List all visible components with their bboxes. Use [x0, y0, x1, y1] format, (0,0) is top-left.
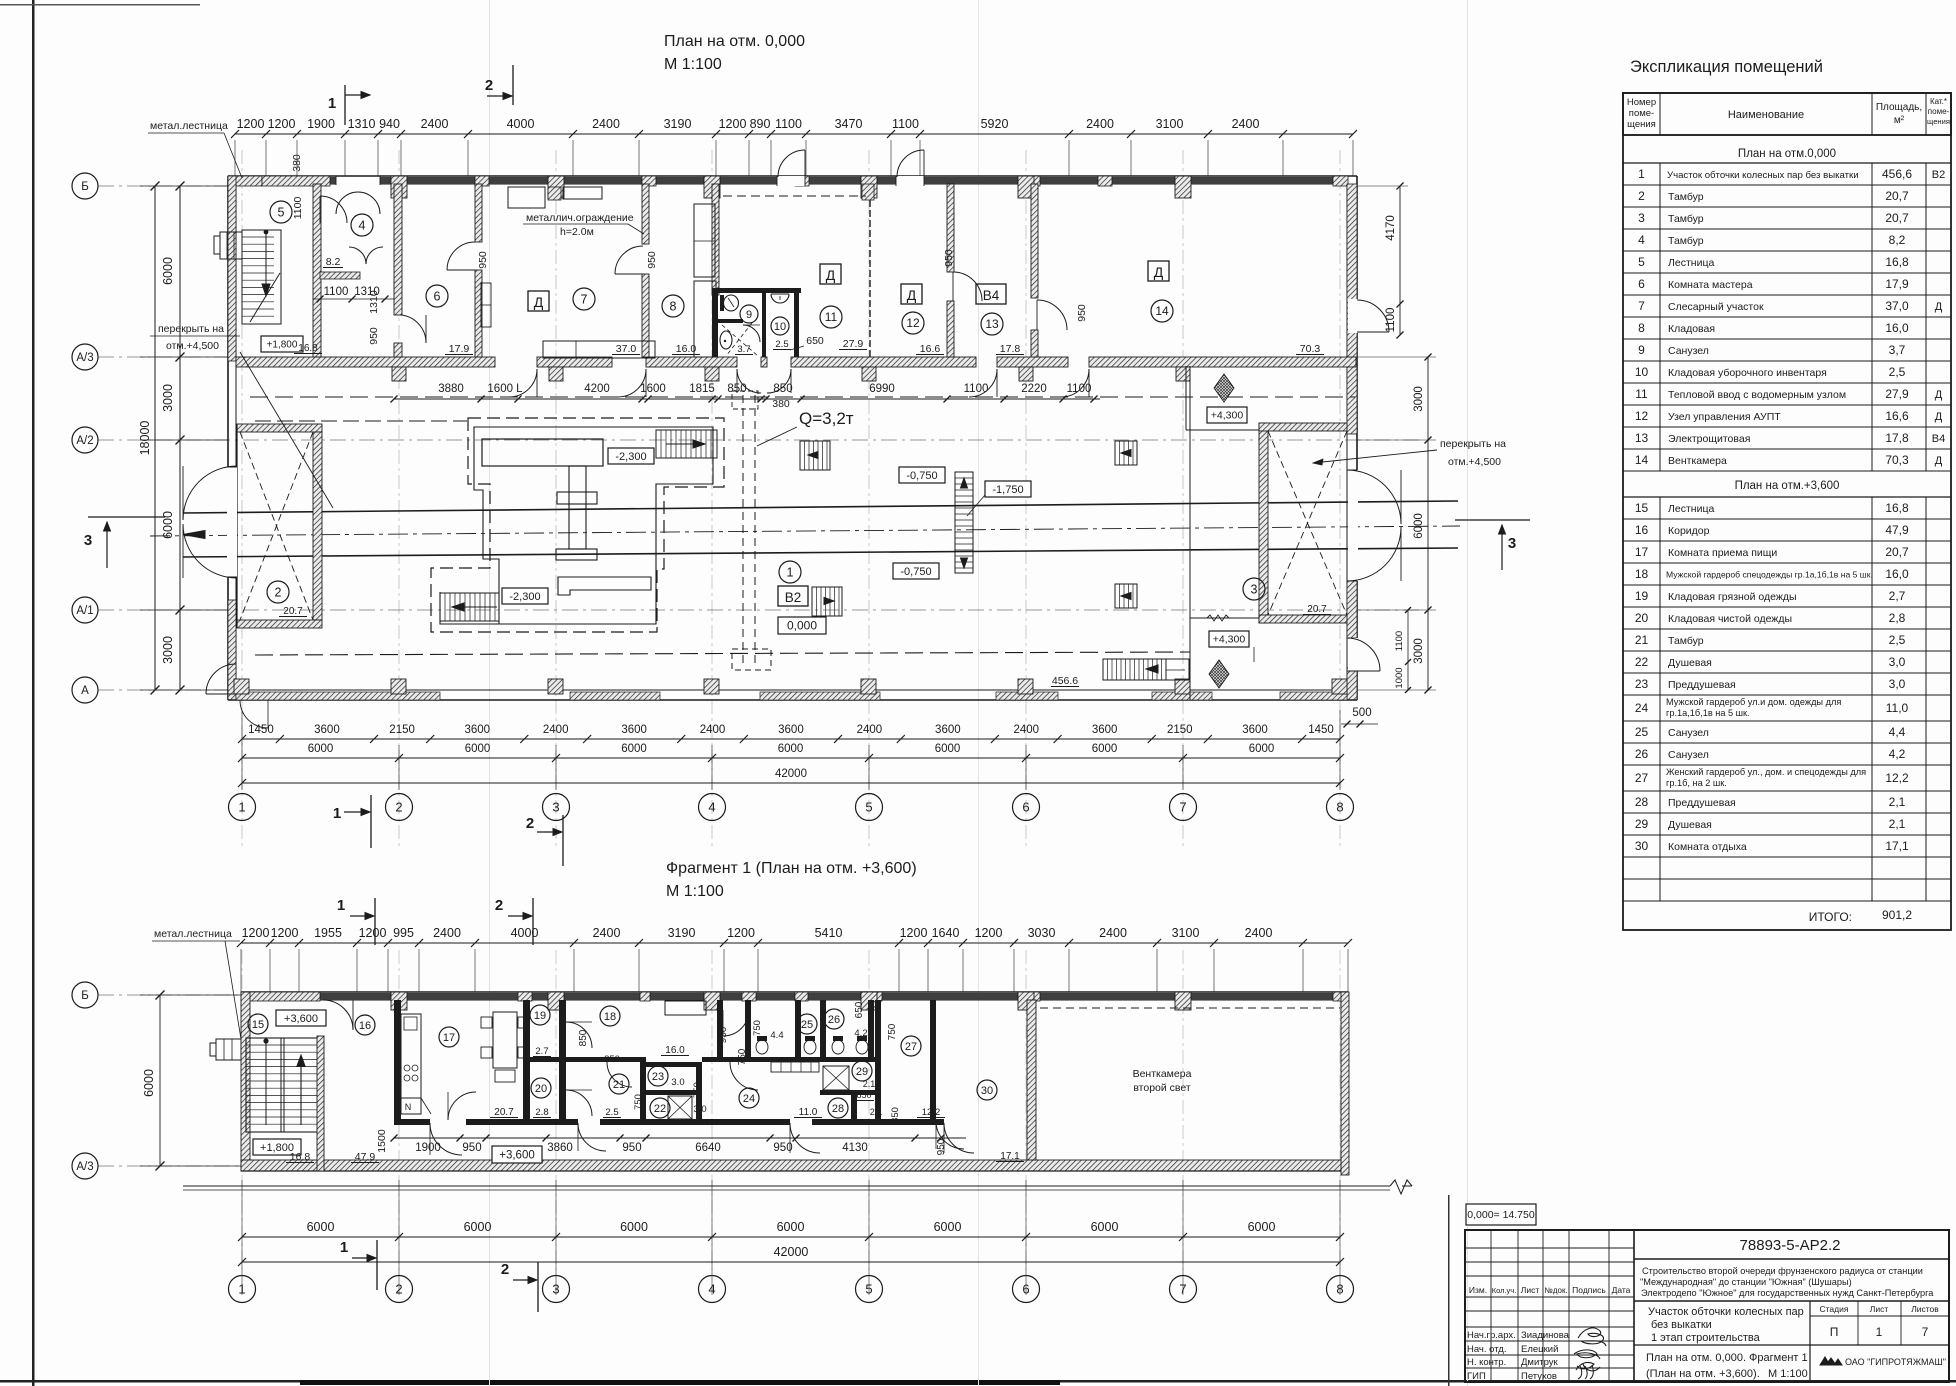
svg-text:Преддушевая: Преддушевая	[1668, 679, 1736, 691]
svg-text:3600: 3600	[1242, 724, 1268, 736]
svg-text:Д: Д	[534, 294, 544, 310]
svg-text:17: 17	[1635, 545, 1649, 559]
svg-text:1200: 1200	[237, 117, 265, 131]
svg-text:950: 950	[462, 1142, 481, 1154]
svg-text:Тамбур: Тамбур	[1668, 235, 1704, 247]
svg-text:850: 850	[578, 1029, 589, 1046]
svg-text:0,000= 14.750: 0,000= 14.750	[1467, 1209, 1535, 1221]
svg-text:Д: Д	[1935, 411, 1943, 423]
svg-text:-1,750: -1,750	[992, 484, 1023, 496]
svg-text:22: 22	[654, 1103, 666, 1115]
svg-text:3600: 3600	[778, 724, 804, 736]
svg-text:3100: 3100	[1172, 926, 1200, 940]
svg-text:750: 750	[633, 1094, 644, 1110]
svg-text:Д: Д	[826, 267, 836, 283]
svg-text:3000: 3000	[161, 384, 175, 412]
svg-text:13: 13	[985, 317, 999, 331]
svg-text:Тамбур: Тамбур	[1668, 191, 1704, 203]
svg-text:Кладовая грязной одежды: Кладовая грязной одежды	[1668, 591, 1797, 603]
svg-text:поме-: поме-	[1928, 107, 1950, 116]
svg-text:19: 19	[534, 1010, 546, 1022]
svg-text:3: 3	[552, 800, 559, 815]
svg-text:750: 750	[887, 1023, 898, 1040]
svg-text:2: 2	[495, 897, 503, 914]
svg-text:А/2: А/2	[76, 435, 93, 447]
svg-text:Наименование: Наименование	[1728, 109, 1804, 121]
svg-text:5: 5	[865, 800, 872, 815]
svg-text:Кладовая чистой одежды: Кладовая чистой одежды	[1668, 613, 1792, 625]
svg-text:6000: 6000	[142, 1069, 156, 1097]
svg-text:3: 3	[84, 532, 92, 549]
svg-text:Нач. отд.: Нач. отд.	[1467, 1344, 1506, 1355]
svg-text:План на отм.+3,600: План на отм.+3,600	[1735, 480, 1840, 492]
svg-text:Площадь,: Площадь,	[1876, 102, 1922, 113]
svg-text:второй свет: второй свет	[1133, 1082, 1191, 1094]
svg-text:Участок обточки колесных пар: Участок обточки колесных пар	[1648, 1306, 1804, 1318]
svg-text:750: 750	[692, 1082, 703, 1098]
svg-text:70,3: 70,3	[1885, 453, 1909, 467]
svg-text:Комната приема пищи: Комната приема пищи	[1668, 547, 1777, 559]
svg-text:Строительство второй очереди ф: Строительство второй очереди фрунзенског…	[1642, 1266, 1923, 1276]
svg-text:4130: 4130	[842, 1142, 868, 1154]
svg-text:1000: 1000	[1394, 667, 1405, 688]
svg-text:16.6: 16.6	[920, 343, 941, 355]
svg-text:6000: 6000	[621, 743, 647, 755]
svg-text:7: 7	[1179, 1282, 1186, 1297]
svg-text:Д: Д	[1154, 264, 1164, 280]
svg-text:20.7: 20.7	[1307, 604, 1327, 615]
svg-text:950: 950	[943, 249, 955, 267]
svg-text:перекрыть на: перекрыть на	[158, 323, 224, 335]
svg-text:6000: 6000	[1249, 743, 1275, 755]
svg-text:В4: В4	[983, 288, 1000, 303]
svg-text:2.1: 2.1	[863, 1079, 876, 1089]
svg-text:Комната мастера: Комната мастера	[1668, 279, 1753, 291]
svg-text:1200: 1200	[242, 926, 270, 940]
svg-text:1: 1	[238, 1282, 245, 1297]
svg-text:2,1: 2,1	[1889, 817, 1906, 831]
svg-text:950: 950	[622, 1142, 641, 1154]
svg-text:37.0: 37.0	[616, 343, 637, 355]
svg-text:метал.лестница: метал.лестница	[150, 120, 228, 132]
svg-text:3.0: 3.0	[693, 1104, 706, 1115]
svg-text:47,9: 47,9	[1885, 523, 1909, 537]
svg-text:+3,600: +3,600	[284, 1013, 318, 1025]
svg-text:Венткамера: Венткамера	[1133, 1068, 1192, 1080]
svg-text:Лист: Лист	[1521, 1285, 1540, 1295]
svg-text:1100: 1100	[892, 117, 919, 131]
svg-text:380: 380	[291, 154, 303, 172]
svg-text:20,7: 20,7	[1885, 211, 1909, 225]
svg-text:1955: 1955	[314, 926, 342, 940]
svg-text:950: 950	[646, 251, 658, 269]
svg-text:650: 650	[854, 1001, 865, 1018]
svg-text:Кат.*: Кат.*	[1930, 97, 1947, 106]
svg-text:16.8: 16.8	[298, 343, 318, 354]
svg-text:-0,750: -0,750	[900, 566, 931, 578]
svg-text:Подпись: Подпись	[1572, 1285, 1606, 1295]
svg-text:2: 2	[1638, 189, 1645, 203]
svg-text:2220: 2220	[1021, 383, 1047, 395]
svg-text:гр.1а,1б,1в на 5 шк.: гр.1а,1б,1в на 5 шк.	[1666, 708, 1750, 718]
svg-text:N: N	[405, 1102, 412, 1112]
svg-text:30: 30	[1635, 839, 1649, 853]
svg-text:3600: 3600	[314, 724, 340, 736]
svg-text:2150: 2150	[1167, 724, 1193, 736]
svg-text:950: 950	[936, 1138, 947, 1155]
svg-text:750: 750	[752, 1020, 763, 1036]
svg-text:20: 20	[1635, 611, 1649, 625]
svg-text:26: 26	[1635, 747, 1649, 761]
svg-text:В4: В4	[1932, 433, 1945, 445]
svg-text:поме-: поме-	[1629, 108, 1654, 119]
svg-text:3000: 3000	[1413, 386, 1425, 412]
svg-text:2400: 2400	[857, 724, 883, 736]
svg-text:3: 3	[552, 1282, 559, 1297]
svg-text:950: 950	[477, 251, 489, 269]
svg-text:12,2: 12,2	[1885, 771, 1909, 785]
svg-text:4: 4	[708, 800, 715, 815]
svg-text:1600: 1600	[640, 383, 666, 395]
svg-text:3600: 3600	[935, 724, 961, 736]
svg-text:М 1:100: М 1:100	[1768, 1368, 1808, 1380]
svg-text:8: 8	[1638, 321, 1645, 335]
svg-text:1100: 1100	[1394, 631, 1405, 651]
svg-text:М 1:100: М 1:100	[666, 883, 724, 900]
svg-text:940: 940	[379, 117, 400, 131]
svg-text:2400: 2400	[543, 724, 569, 736]
svg-text:20.7: 20.7	[283, 606, 303, 617]
svg-text:2400: 2400	[1086, 117, 1114, 131]
svg-text:24: 24	[743, 1093, 755, 1105]
svg-text:План на отм. 0,000. Фрагмент 1: План на отм. 0,000. Фрагмент 1	[1646, 1352, 1808, 1364]
svg-text:Тамбур: Тамбур	[1668, 213, 1704, 225]
svg-text:1200: 1200	[359, 926, 387, 940]
svg-text:-0,750: -0,750	[906, 470, 937, 482]
svg-text:650: 650	[806, 335, 824, 347]
svg-text:0,000: 0,000	[787, 619, 817, 633]
svg-text:Дмитрук: Дмитрук	[1521, 1357, 1559, 1368]
svg-text:3.7: 3.7	[737, 344, 750, 355]
svg-text:3880: 3880	[438, 383, 464, 395]
svg-text:Коридор: Коридор	[1668, 525, 1710, 537]
svg-text:"Международная" до станции "Юж: "Международная" до станции "Южная" (Шуша…	[1640, 1277, 1852, 1287]
svg-text:850: 850	[773, 383, 792, 395]
svg-text:20,7: 20,7	[1885, 189, 1909, 203]
svg-text:2,8: 2,8	[1889, 611, 1906, 625]
svg-text:перекрыть на: перекрыть на	[1440, 438, 1506, 450]
svg-text:Венткамера: Венткамера	[1668, 455, 1727, 467]
svg-text:6000: 6000	[308, 743, 334, 755]
svg-text:30: 30	[981, 1085, 993, 1097]
svg-text:3,0: 3,0	[1889, 677, 1906, 691]
svg-text:28: 28	[1635, 795, 1649, 809]
svg-text:850: 850	[727, 383, 746, 395]
svg-text:6990: 6990	[869, 383, 895, 395]
svg-text:2400: 2400	[1099, 926, 1127, 940]
svg-text:1: 1	[337, 897, 345, 914]
svg-text:11,0: 11,0	[1886, 701, 1909, 715]
svg-text:м²: м²	[1894, 115, 1905, 126]
svg-text:20: 20	[535, 1083, 547, 1095]
svg-text:ИТОГО:: ИТОГО:	[1809, 910, 1852, 924]
svg-text:2: 2	[485, 77, 493, 94]
svg-text:23: 23	[652, 1071, 664, 1083]
svg-text:1900: 1900	[415, 1142, 441, 1154]
svg-text:13: 13	[1635, 431, 1649, 445]
svg-text:2.8: 2.8	[535, 1107, 548, 1118]
svg-text:2400: 2400	[1232, 117, 1260, 131]
svg-text:21: 21	[1635, 633, 1649, 647]
svg-text:6000: 6000	[1091, 1220, 1119, 1234]
svg-text:-2,300: -2,300	[509, 591, 540, 603]
svg-text:Изм.: Изм.	[1469, 1285, 1487, 1295]
svg-text:Лестница: Лестница	[1668, 503, 1714, 515]
svg-text:2400: 2400	[700, 724, 726, 736]
svg-text:3,7: 3,7	[1889, 343, 1906, 357]
svg-text:8: 8	[1336, 800, 1343, 815]
svg-text:Узел управления АУПТ: Узел управления АУПТ	[1668, 411, 1781, 423]
svg-text:16.0: 16.0	[665, 1045, 685, 1056]
svg-text:25: 25	[1635, 725, 1649, 739]
svg-text:Н. контр.: Н. контр.	[1467, 1357, 1506, 1368]
svg-text:850: 850	[856, 1090, 871, 1100]
svg-text:2,5: 2,5	[1889, 633, 1906, 647]
svg-text:Тамбур: Тамбур	[1668, 635, 1704, 647]
svg-text:7: 7	[1179, 800, 1186, 815]
svg-text:В2: В2	[785, 590, 802, 605]
svg-text:1100: 1100	[1385, 308, 1397, 333]
svg-text:27: 27	[1635, 771, 1649, 785]
svg-text:70.3: 70.3	[1300, 343, 1321, 355]
svg-text:8: 8	[670, 299, 677, 313]
svg-text:П: П	[1830, 1325, 1839, 1339]
svg-text:1200: 1200	[900, 926, 928, 940]
svg-text:6000: 6000	[935, 743, 961, 755]
svg-text:без выкатки: без выкатки	[1651, 1319, 1712, 1331]
svg-text:4,2: 4,2	[1889, 747, 1906, 761]
svg-text:27.9: 27.9	[843, 338, 864, 350]
svg-text:3600: 3600	[1092, 724, 1118, 736]
svg-text:4000: 4000	[507, 117, 535, 131]
svg-text:2400: 2400	[421, 117, 449, 131]
svg-text:17: 17	[443, 1032, 455, 1044]
svg-text:Электродепо "Южное" для госуда: Электродепо "Южное" для государственных …	[1641, 1288, 1934, 1298]
svg-text:16,8: 16,8	[1885, 501, 1909, 515]
svg-text:Петухов: Петухов	[1521, 1371, 1557, 1382]
svg-text:17,1: 17,1	[1885, 839, 1909, 853]
svg-text:1100: 1100	[292, 197, 304, 220]
svg-text:метал.лестница: метал.лестница	[154, 928, 232, 940]
svg-text:М 1:100: М 1:100	[664, 56, 722, 73]
svg-text:3,0: 3,0	[1889, 655, 1906, 669]
svg-text:456.6: 456.6	[1052, 675, 1078, 687]
svg-text:995: 995	[393, 926, 414, 940]
svg-text:16,6: 16,6	[1885, 409, 1909, 423]
svg-text:27: 27	[905, 1041, 917, 1053]
svg-text:Д: Д	[1935, 389, 1943, 401]
svg-text:1: 1	[787, 565, 794, 579]
svg-text:4: 4	[359, 218, 366, 232]
svg-text:№док.: №док.	[1544, 1286, 1567, 1295]
svg-text:12: 12	[1635, 409, 1649, 423]
svg-text:750: 750	[737, 1048, 748, 1065]
svg-text:18000: 18000	[138, 421, 152, 456]
svg-text:Санузел: Санузел	[1668, 749, 1709, 761]
svg-text:5410: 5410	[815, 926, 843, 940]
svg-text:950: 950	[718, 1026, 729, 1043]
svg-text:7: 7	[1638, 299, 1645, 313]
svg-text:6000: 6000	[465, 743, 491, 755]
svg-text:1200: 1200	[719, 117, 747, 131]
svg-text:1: 1	[1638, 167, 1645, 181]
svg-text:+4,300: +4,300	[1211, 410, 1244, 422]
svg-text:950: 950	[368, 327, 380, 345]
svg-text:16,0: 16,0	[1885, 321, 1909, 335]
svg-text:щения: щения	[1927, 117, 1950, 126]
svg-text:3: 3	[1508, 535, 1516, 552]
svg-text:Преддушевая: Преддушевая	[1668, 797, 1736, 809]
svg-text:6000: 6000	[934, 1220, 962, 1234]
svg-text:Женский гардероб ул., дом. и с: Женский гардероб ул., дом. и спецодежды …	[1666, 767, 1866, 777]
svg-text:1200: 1200	[271, 926, 299, 940]
svg-text:20.7: 20.7	[494, 1107, 514, 1118]
svg-text:16.8: 16.8	[290, 1151, 311, 1163]
svg-text:17,8: 17,8	[1885, 431, 1909, 445]
svg-text:850: 850	[604, 1054, 620, 1065]
svg-text:16: 16	[359, 1020, 371, 1032]
svg-text:11.0: 11.0	[799, 1107, 818, 1118]
svg-text:2: 2	[395, 800, 402, 815]
svg-text:Тепловой ввод с водомерным узл: Тепловой ввод с водомерным узлом	[1668, 389, 1846, 401]
svg-text:3860: 3860	[547, 1142, 573, 1154]
svg-text:6000: 6000	[777, 1220, 805, 1234]
svg-text:4: 4	[708, 1282, 715, 1297]
svg-text:11: 11	[825, 310, 838, 324]
svg-text:9: 9	[746, 309, 752, 321]
svg-text:А/1: А/1	[76, 605, 93, 617]
svg-text:18: 18	[1635, 567, 1649, 581]
svg-text:12: 12	[906, 316, 920, 330]
svg-text:3000: 3000	[1413, 638, 1425, 664]
svg-text:9: 9	[1638, 343, 1645, 357]
svg-text:11: 11	[1635, 387, 1648, 401]
svg-text:Дата: Дата	[1612, 1285, 1631, 1295]
svg-text:2.7: 2.7	[535, 1046, 548, 1057]
svg-text:24: 24	[1635, 701, 1649, 715]
svg-text:гр.1б, на 2 шк.: гр.1б, на 2 шк.	[1666, 778, 1727, 788]
svg-text:1500: 1500	[376, 1129, 388, 1153]
svg-text:3190: 3190	[664, 117, 692, 131]
svg-text:1450: 1450	[1308, 724, 1334, 736]
svg-text:2400: 2400	[1013, 724, 1039, 736]
svg-text:4.4: 4.4	[770, 1030, 783, 1041]
svg-text:А/3: А/3	[76, 352, 93, 364]
svg-text:Зиадинова: Зиадинова	[1521, 1330, 1570, 1341]
svg-text:1100: 1100	[1067, 383, 1092, 395]
svg-text:Б: Б	[81, 990, 89, 1002]
svg-text:Листов: Листов	[1911, 1304, 1939, 1314]
svg-text:Участок обточки колесных пар б: Участок обточки колесных пар без выкатки	[1667, 170, 1859, 181]
svg-text:4200: 4200	[584, 383, 610, 395]
svg-text:5: 5	[1638, 255, 1645, 269]
svg-text:23: 23	[1635, 677, 1649, 691]
svg-text:1200: 1200	[268, 117, 296, 131]
svg-text:4,4: 4,4	[1889, 725, 1906, 739]
svg-text:1: 1	[340, 1239, 348, 1256]
svg-text:27,9: 27,9	[1885, 387, 1909, 401]
svg-text:8: 8	[1336, 1282, 1343, 1297]
svg-text:2: 2	[275, 585, 282, 599]
svg-text:6000: 6000	[620, 1220, 648, 1234]
svg-text:ОАО "ГИПРОТЯЖМАШ": ОАО "ГИПРОТЯЖМАШ"	[1845, 1357, 1946, 1367]
svg-text:17.9: 17.9	[449, 343, 470, 355]
svg-text:6000: 6000	[778, 743, 804, 755]
svg-text:456,6: 456,6	[1882, 167, 1912, 181]
svg-text:850: 850	[890, 1107, 901, 1123]
svg-text:890: 890	[750, 117, 771, 131]
svg-text:Д: Д	[907, 287, 917, 303]
svg-text:Санузел: Санузел	[1668, 345, 1709, 357]
svg-text:Слесарный участок: Слесарный участок	[1668, 301, 1764, 313]
svg-text:ГИП: ГИП	[1467, 1371, 1486, 1382]
svg-text:1815: 1815	[689, 383, 715, 395]
svg-text:19: 19	[1635, 589, 1649, 603]
svg-text:10: 10	[774, 321, 786, 333]
svg-text:1900: 1900	[307, 117, 335, 131]
svg-text:37,0: 37,0	[1885, 299, 1909, 313]
svg-text:14: 14	[1635, 453, 1649, 467]
svg-text:6640: 6640	[695, 1142, 721, 1154]
svg-text:950: 950	[773, 1142, 792, 1154]
svg-text:6: 6	[1022, 1282, 1029, 1297]
svg-text:7: 7	[1922, 1325, 1929, 1339]
svg-text:4170: 4170	[1385, 215, 1397, 241]
svg-text:950: 950	[1076, 304, 1088, 322]
svg-text:5: 5	[278, 205, 285, 219]
svg-text:22: 22	[1635, 655, 1649, 669]
svg-text:1600 L: 1600 L	[487, 383, 523, 395]
svg-text:28: 28	[832, 1103, 844, 1115]
svg-text:26: 26	[828, 1014, 840, 1026]
svg-text:А: А	[81, 685, 89, 697]
svg-text:3100: 3100	[1156, 117, 1184, 131]
svg-text:Кладовая: Кладовая	[1668, 323, 1715, 335]
svg-text:(План на отм. +3,600).: (План на отм. +3,600).	[1646, 1368, 1760, 1380]
svg-text:А/3: А/3	[76, 1161, 93, 1173]
svg-text:8.2: 8.2	[326, 256, 341, 268]
svg-text:3.0: 3.0	[671, 1077, 684, 1088]
svg-text:3030: 3030	[1028, 926, 1056, 940]
svg-text:2,7: 2,7	[1889, 589, 1906, 603]
svg-text:2,5: 2,5	[1889, 365, 1906, 379]
svg-text:щения: щения	[1627, 119, 1656, 130]
svg-text:+1,800: +1,800	[267, 340, 298, 351]
svg-text:3470: 3470	[835, 117, 863, 131]
svg-text:5: 5	[865, 1282, 872, 1297]
svg-text:2400: 2400	[593, 926, 621, 940]
svg-text:1: 1	[328, 95, 336, 112]
svg-text:2: 2	[501, 1261, 509, 1278]
svg-text:Санузел: Санузел	[1668, 727, 1709, 739]
svg-text:2400: 2400	[1245, 926, 1273, 940]
svg-text:3600: 3600	[621, 724, 647, 736]
svg-text:1 этап строительства: 1 этап строительства	[1651, 1332, 1761, 1344]
svg-text:Елецкий: Елецкий	[1521, 1344, 1558, 1355]
svg-text:4000: 4000	[511, 926, 539, 940]
svg-text:29: 29	[856, 1066, 868, 1078]
svg-text:1310: 1310	[348, 117, 376, 131]
